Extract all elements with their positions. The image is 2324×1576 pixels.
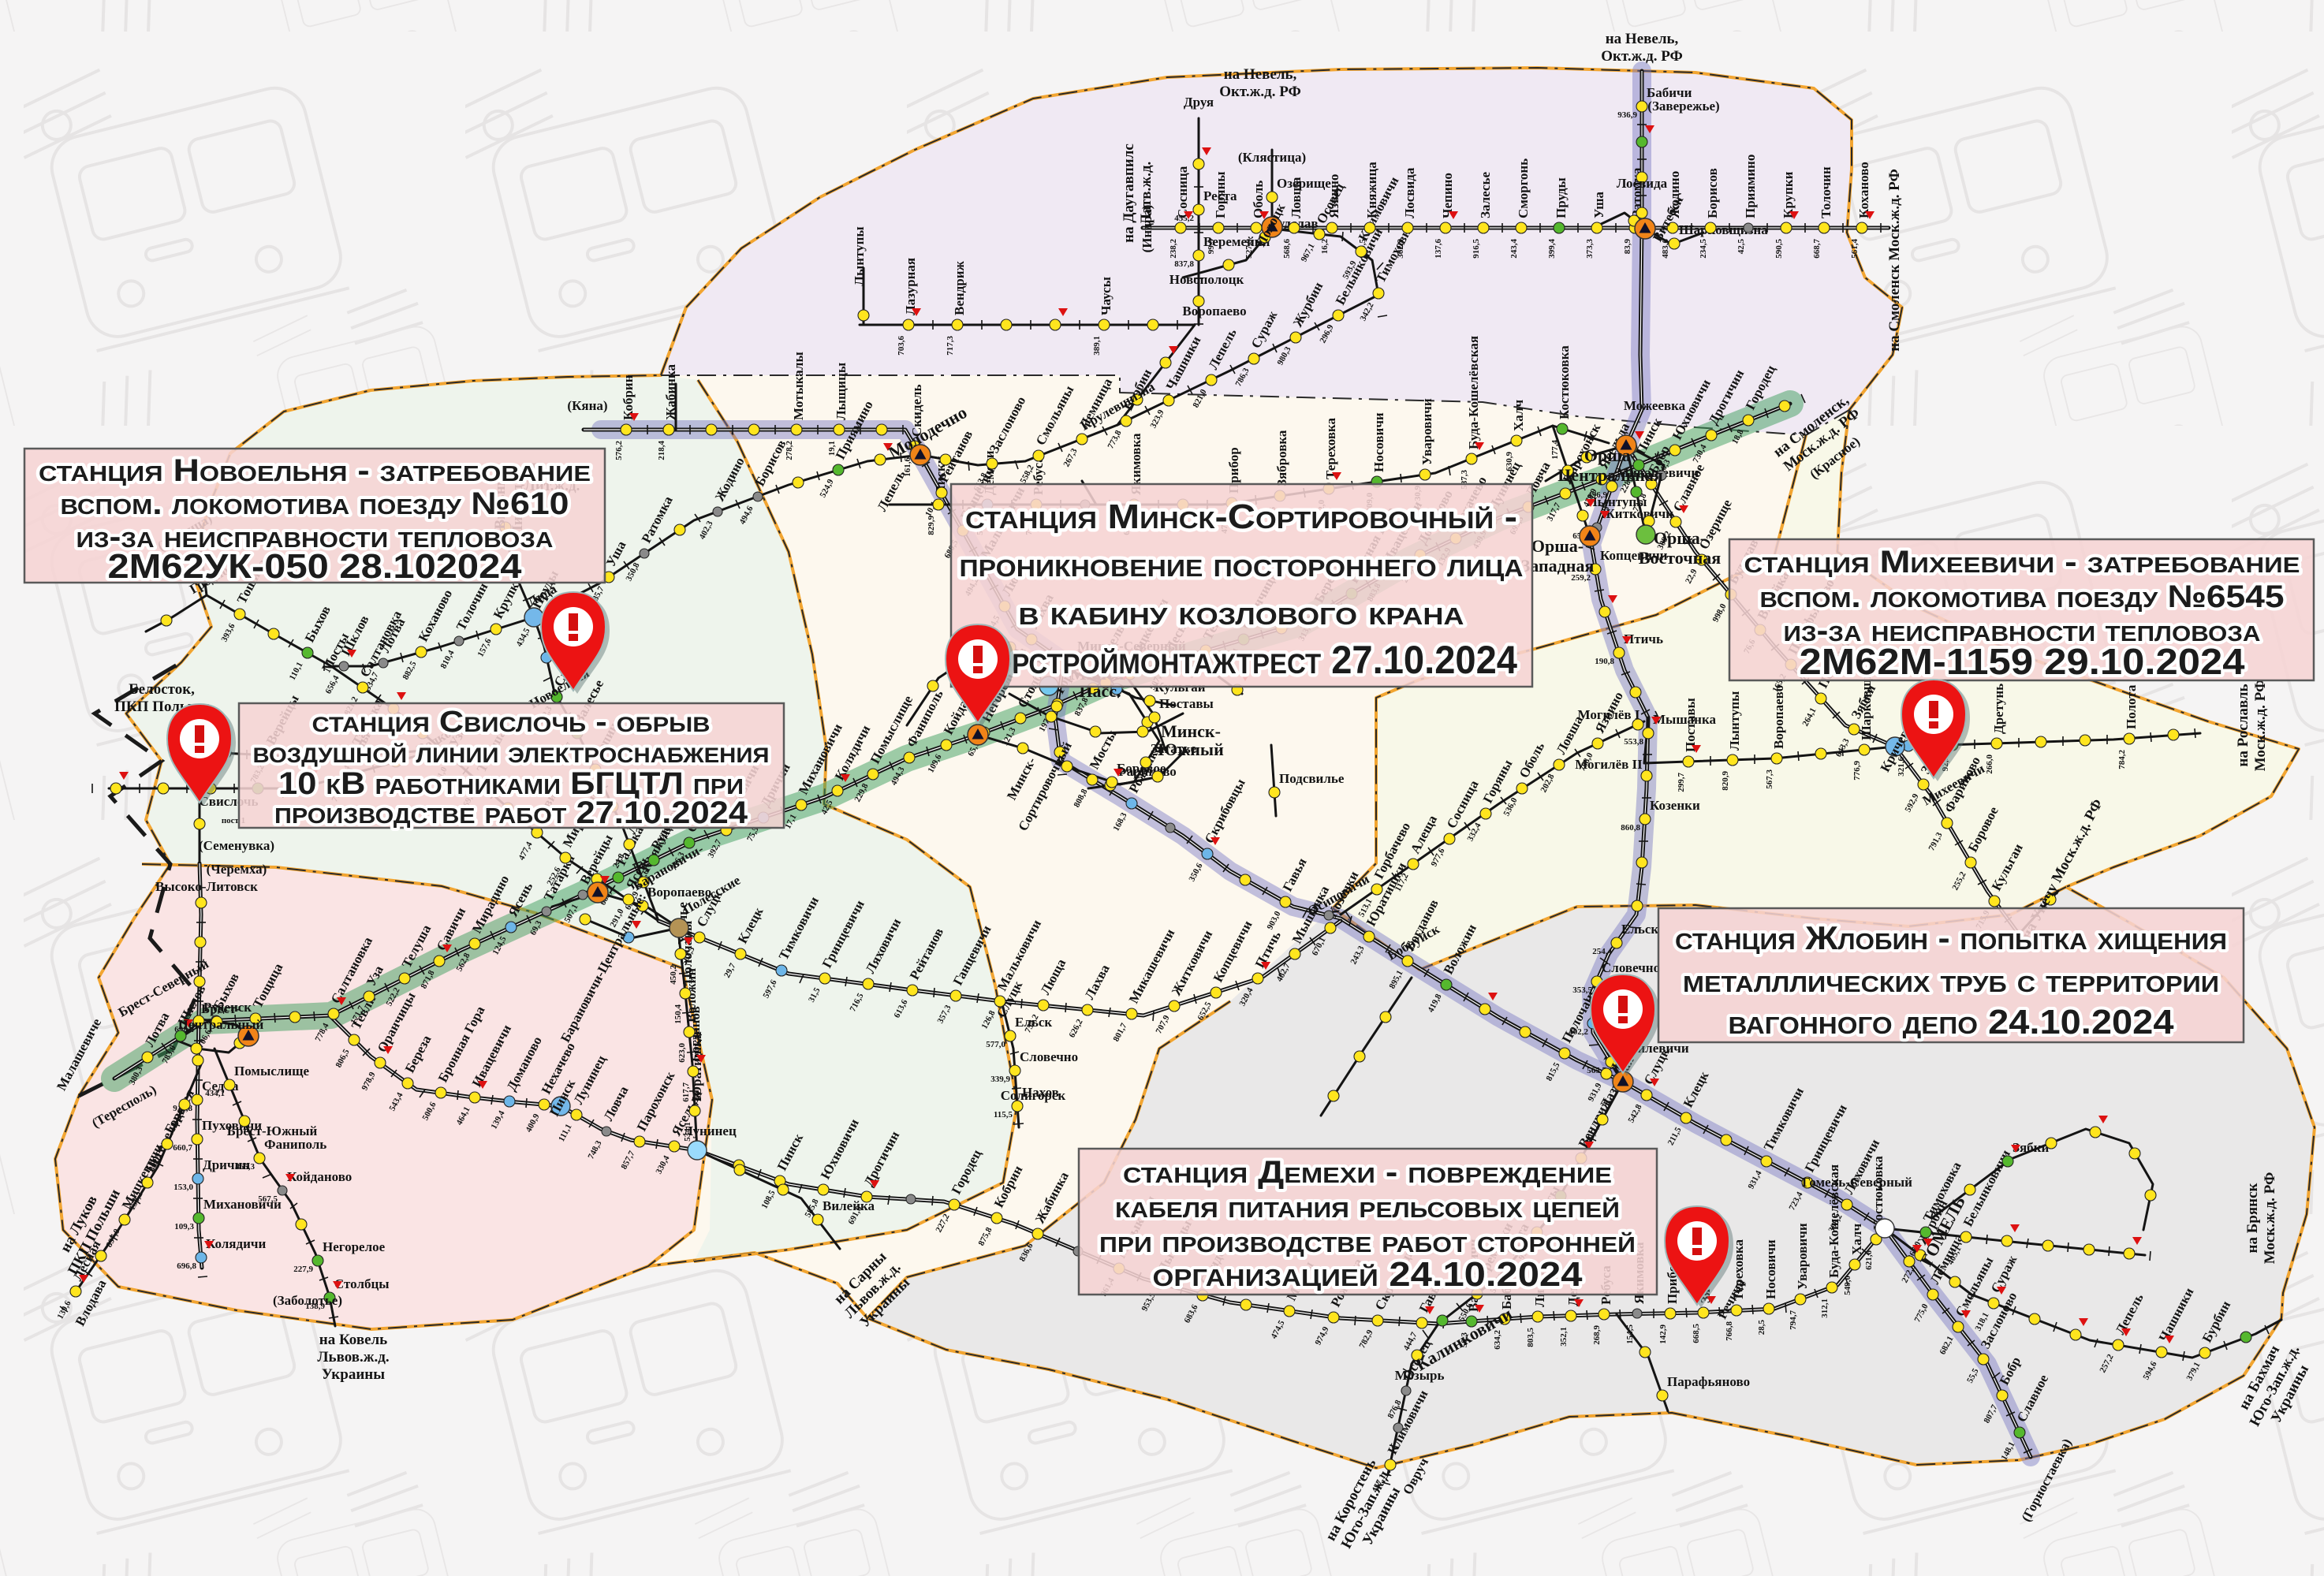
svg-text:234,5: 234,5: [1699, 239, 1708, 259]
svg-text:вспом. локомотива поезду №610: вспом. локомотива поезду №610: [61, 486, 569, 521]
svg-text:Друя: Друя: [1184, 95, 1214, 110]
svg-text:Лынтупы: Лынтупы: [852, 226, 867, 285]
svg-text:Носовичи: Носовичи: [1371, 412, 1386, 472]
svg-text:567,3: 567,3: [1765, 769, 1774, 789]
svg-text:630,9: 630,9: [1505, 452, 1514, 471]
svg-text:Ельск: Ельск: [1015, 1015, 1052, 1030]
svg-text:проникновение постороннего лиц: проникновение постороннего лица: [960, 546, 1524, 584]
svg-text:455,2: 455,2: [1174, 214, 1194, 223]
svg-text:Центральная: Центральная: [1557, 465, 1663, 485]
svg-text:вагонного депо 24.10.2024: вагонного депо 24.10.2024: [1729, 1003, 2175, 1041]
svg-text:Чаусы: Чаусы: [1099, 277, 1114, 315]
svg-text:(Черемха): (Черемха): [207, 862, 267, 877]
svg-text:42,5: 42,5: [1736, 239, 1746, 255]
svg-text:Вендриж: Вендриж: [952, 260, 967, 315]
svg-text:Ельск: Ельск: [1621, 922, 1658, 937]
svg-text:137,6: 137,6: [1434, 239, 1443, 259]
svg-text:Воропаево: Воропаево: [1771, 685, 1786, 749]
svg-text:станция Демехи - повреждение: станция Демехи - повреждение: [1123, 1155, 1612, 1190]
svg-text:154,5: 154,5: [1625, 1325, 1635, 1344]
svg-text:станция Новоельня - затребован: станция Новоельня - затребование: [39, 453, 591, 488]
svg-text:553,8: 553,8: [1624, 737, 1643, 747]
svg-text:142,9: 142,9: [1658, 1325, 1668, 1344]
svg-text:Койданово: Койданово: [287, 1169, 352, 1184]
svg-text:в кабину козлового крана: в кабину козлового крана: [1019, 594, 1464, 632]
svg-text:238,2: 238,2: [1169, 239, 1178, 259]
svg-text:(Завережье): (Завережье): [1647, 99, 1719, 114]
svg-text:299,7: 299,7: [1677, 773, 1686, 792]
svg-text:Сосница: Сосница: [1175, 166, 1190, 218]
svg-text:металллических труб с территор: металллических труб с территории: [1683, 962, 2219, 999]
svg-text:402,2: 402,2: [1569, 1027, 1588, 1037]
svg-text:766,8: 766,8: [1725, 1321, 1734, 1341]
svg-text:Лынтупы: Лынтупы: [1727, 691, 1742, 751]
svg-text:Парафьяново: Парафьяново: [1667, 1374, 1750, 1389]
svg-text:668,5: 668,5: [1692, 1324, 1701, 1343]
svg-text:567,5: 567,5: [258, 1194, 278, 1204]
svg-text:Шарковщизна: Шарковщизна: [1679, 222, 1768, 237]
svg-text:Поставы: Поставы: [1683, 698, 1698, 752]
svg-text:Уша: Уша: [1591, 192, 1606, 218]
svg-text:Словечно: Словечно: [1020, 1049, 1078, 1064]
svg-text:Лосвида: Лосвида: [1402, 167, 1417, 218]
svg-text:399,4: 399,4: [1547, 239, 1557, 259]
svg-text:312,1: 312,1: [1820, 1298, 1830, 1318]
svg-text:Реста: Реста: [1203, 188, 1237, 203]
svg-text:вспом. локомотива поезду №6545: вспом. локомотива поезду №6545: [1760, 579, 2285, 614]
svg-text:Столбцы: Столбцы: [334, 1276, 390, 1291]
svg-text:на Невель,Окт.ж.д. РФ: на Невель,Окт.ж.д. РФ: [1601, 31, 1683, 65]
svg-text:776,9: 776,9: [1852, 761, 1862, 781]
svg-text:Воропаево: Воропаево: [1182, 304, 1246, 319]
svg-text:Негорелое: Негорелое: [323, 1239, 386, 1254]
svg-text:Солигорск: Солигорск: [1001, 1088, 1066, 1103]
svg-text:820,9: 820,9: [1721, 771, 1730, 791]
svg-text:(Клястица): (Клястица): [1238, 150, 1306, 165]
svg-text:Мозырь: Мозырь: [1395, 1368, 1445, 1383]
svg-text:Зябровка: Зябровка: [1274, 430, 1289, 486]
svg-text:воздушной линии электроснабжен: воздушной линии электроснабжения: [253, 736, 770, 769]
svg-text:561,4: 561,4: [1850, 239, 1860, 259]
svg-text:109,3: 109,3: [174, 1222, 194, 1231]
svg-text:станция Минск-Сортировочный -: станция Минск-Сортировочный -: [965, 497, 1517, 536]
svg-text:Можеевка: Можеевка: [1624, 398, 1686, 413]
svg-text:434,1: 434,1: [205, 1089, 225, 1098]
svg-text:(Индра): (Индра): [1140, 205, 1155, 253]
svg-text:Помыслище: Помыслище: [234, 1064, 309, 1079]
svg-text:576,2: 576,2: [614, 441, 624, 460]
svg-text:Приямино: Приямино: [1743, 155, 1758, 218]
svg-text:Носовичи: Носовичи: [1763, 1239, 1778, 1299]
svg-text:577,0: 577,0: [986, 1040, 1005, 1049]
svg-text:на Смоленск Моск.ж.д. РФ: на Смоленск Моск.ж.д. РФ: [1886, 169, 1903, 352]
svg-text:617,7: 617,7: [681, 1082, 691, 1102]
svg-text:Брест-Южный: Брест-Южный: [227, 1123, 318, 1138]
svg-text:Жабинка: Жабинка: [663, 363, 678, 420]
svg-text:Озерище: Озерище: [1277, 176, 1331, 191]
svg-text:227,9: 227,9: [293, 1265, 313, 1274]
svg-text:803,5: 803,5: [1526, 1328, 1535, 1347]
svg-text:150,4: 150,4: [673, 1004, 683, 1024]
svg-text:Толочин: Толочин: [1819, 166, 1833, 218]
svg-text:936,9: 936,9: [1617, 110, 1637, 120]
svg-text:Дретунь: Дретунь: [1991, 684, 2006, 734]
svg-text:2М62М-1159 29.10.2024: 2М62М-1159 29.10.2024: [1800, 641, 2245, 682]
svg-text:Лыщицы: Лыщицы: [834, 363, 849, 420]
svg-text:Брест-: Брест-: [201, 1001, 241, 1016]
svg-text:Полота: Полота: [2124, 684, 2139, 729]
svg-text:450,2: 450,2: [669, 965, 678, 985]
svg-text:352,1: 352,1: [1559, 1327, 1569, 1347]
svg-text:на РославльМоск.ж.д. РФ: на РославльМоск.ж.д. РФ: [2235, 680, 2269, 772]
svg-text:28,5: 28,5: [1757, 1320, 1766, 1336]
svg-text:производстве работ 27.10.2024: производстве работ 27.10.2024: [274, 795, 748, 830]
svg-text:на БрянскМоск.ж.д. РФ: на БрянскМоск.ж.д. РФ: [2244, 1172, 2278, 1265]
svg-text:Дорстроймонтажтрест 27.10.2024: Дорстроймонтажтрест 27.10.2024: [965, 638, 1517, 682]
svg-text:Мотыкалы: Мотыкалы: [791, 352, 806, 420]
svg-text:Могилёв II: Могилёв II: [1575, 757, 1643, 772]
svg-text:243,4: 243,4: [1509, 239, 1519, 259]
svg-text:Сморгонь: Сморгонь: [1516, 158, 1531, 218]
svg-text:Лунинец: Лунинец: [683, 1123, 737, 1138]
svg-text:Уваровичи: Уваровичи: [1795, 1223, 1810, 1290]
svg-text:Подсвилье: Подсвилье: [1279, 771, 1345, 786]
svg-text:Колядичи: Колядичи: [206, 1236, 266, 1251]
svg-text:465,3: 465,3: [235, 1162, 255, 1172]
svg-text:339,9: 339,9: [990, 1075, 1010, 1084]
svg-text:Высоко-Литовск: Высоко-Литовск: [155, 879, 258, 894]
svg-text:Халч: Халч: [1849, 1224, 1864, 1255]
svg-text:станция Михеевичи - затребован: станция Михеевичи - затребование: [1744, 545, 2300, 579]
svg-text:Центральный: Центральный: [178, 1017, 264, 1032]
svg-text:Борисов: Борисов: [1705, 168, 1720, 218]
svg-text:266,0: 266,0: [1985, 754, 1994, 774]
svg-text:568,6: 568,6: [1282, 239, 1292, 259]
svg-text:Лосвида: Лосвида: [1617, 176, 1668, 191]
svg-text:Халч: Халч: [1511, 400, 1526, 431]
svg-text:Орша-: Орша-: [1584, 445, 1636, 465]
svg-text:916,5: 916,5: [1472, 239, 1481, 259]
svg-text:2М62УК-050 28.102024: 2М62УК-050 28.102024: [108, 547, 523, 586]
svg-text:Могилёв I: Могилёв I: [1578, 707, 1640, 722]
svg-text:Костюковка: Костюковка: [1557, 345, 1572, 419]
svg-text:Пруды: Пруды: [1554, 177, 1569, 218]
svg-text:696,8: 696,8: [177, 1261, 196, 1271]
svg-text:Залесье: Залесье: [1478, 172, 1493, 218]
svg-text:Тереховка: Тереховка: [1323, 417, 1338, 479]
svg-text:16,2: 16,2: [1320, 239, 1330, 255]
svg-text:268,9: 268,9: [1592, 1325, 1602, 1345]
svg-text:кабеля питания рельсовых цепей: кабеля питания рельсовых цепей: [1115, 1190, 1620, 1224]
svg-text:829,9: 829,9: [927, 516, 936, 535]
svg-text:Минск-: Минск-: [1161, 721, 1221, 741]
svg-text:Южный: Южный: [1158, 740, 1224, 759]
svg-text:254,4: 254,4: [1592, 947, 1612, 956]
svg-text:353,5: 353,5: [1572, 985, 1592, 995]
svg-text:организацией 24.10.2024: организацией 24.10.2024: [1153, 1255, 1584, 1294]
svg-text:373,3: 373,3: [1585, 239, 1595, 259]
svg-text:на Невель,Окт.ж.д. РФ: на Невель,Окт.ж.д. РФ: [1219, 66, 1301, 100]
svg-text:Фаниполь: Фаниполь: [264, 1137, 326, 1152]
svg-text:Словечно: Словечно: [1602, 960, 1660, 975]
svg-text:Новополоцк: Новополоцк: [1169, 272, 1244, 287]
svg-text:Гомель-Северный: Гомель-Северный: [1802, 1175, 1912, 1190]
svg-text:Восточная: Восточная: [1639, 548, 1721, 568]
svg-text:389,1: 389,1: [1092, 336, 1102, 356]
svg-text:(Заболотье): (Заболотье): [273, 1293, 342, 1308]
svg-text:660,7: 660,7: [173, 1143, 192, 1153]
svg-text:794,7: 794,7: [1789, 1310, 1798, 1330]
svg-text:153,0: 153,0: [173, 1183, 193, 1192]
svg-text:623,0: 623,0: [677, 1043, 687, 1063]
svg-text:(Семенувка): (Семенувка): [199, 838, 274, 853]
svg-text:784,2: 784,2: [2117, 750, 2127, 769]
svg-text:Орша-: Орша-: [1531, 536, 1584, 556]
svg-text:Коханово: Коханово: [1856, 162, 1871, 218]
svg-text:837,8: 837,8: [1174, 259, 1194, 269]
svg-text:703,6: 703,6: [897, 336, 906, 356]
svg-text:190,8: 190,8: [1595, 657, 1614, 666]
svg-text:Козенки: Козенки: [1650, 798, 1700, 813]
svg-text:Орша-: Орша-: [1654, 528, 1706, 548]
svg-text:при производстве работ сторонн: при производстве работ сторонней: [1099, 1224, 1636, 1259]
svg-text:Уваровичи: Уваровичи: [1419, 398, 1434, 465]
svg-text:83,9: 83,9: [1623, 239, 1632, 255]
svg-text:218,4: 218,4: [657, 441, 666, 460]
svg-text:Лазурная: Лазурная: [903, 258, 918, 315]
svg-text:717,3: 717,3: [946, 336, 955, 356]
svg-text:станция Жлобин - попытка хищен: станция Жлобин - попытка хищения: [1675, 919, 2227, 956]
svg-text:станция Свислочь - обрыв: станция Свислочь - обрыв: [312, 706, 711, 739]
svg-text:860,8: 860,8: [1621, 823, 1640, 833]
svg-text:668,7: 668,7: [1812, 239, 1822, 259]
svg-text:177,4: 177,4: [1550, 440, 1560, 460]
svg-text:на КовельЛьвов.ж.д.Украины: на КовельЛьвов.ж.д.Украины: [317, 1332, 389, 1383]
svg-text:Поставы: Поставы: [1159, 696, 1214, 711]
svg-text:115,5: 115,5: [994, 1110, 1013, 1120]
svg-text:Буда-Кошелёвская: Буда-Кошелёвская: [1466, 336, 1481, 449]
svg-text:590,5: 590,5: [1774, 239, 1784, 259]
svg-text:(Кяна): (Кяна): [567, 398, 607, 413]
